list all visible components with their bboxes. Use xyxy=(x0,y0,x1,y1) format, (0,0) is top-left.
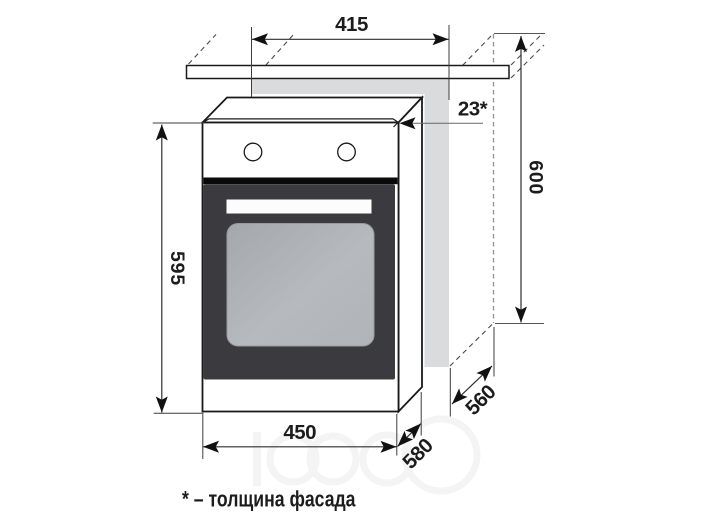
svg-text:415: 415 xyxy=(335,13,368,36)
svg-text:23*: 23* xyxy=(458,98,488,121)
svg-text:* – толщина фасада: * – толщина фасада xyxy=(182,487,356,512)
svg-text:450: 450 xyxy=(283,421,316,444)
svg-text:600: 600 xyxy=(525,160,547,195)
svg-text:595: 595 xyxy=(166,251,188,286)
